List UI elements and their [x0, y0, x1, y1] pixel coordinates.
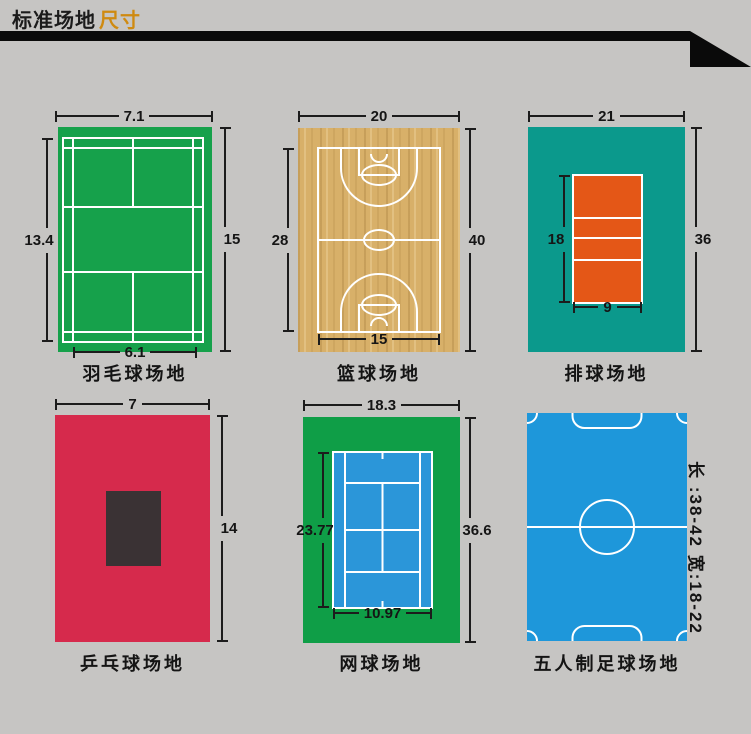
dim-line: [221, 417, 223, 516]
dim-tick: [42, 340, 53, 342]
dim-label: 18.3: [362, 398, 401, 413]
dim-line: [142, 403, 208, 405]
dim-line: [469, 419, 471, 518]
dim-line: [406, 612, 430, 614]
dim-line: [617, 306, 640, 308]
dim-line: [287, 253, 289, 331]
dim-tick: [430, 608, 432, 619]
dim-line: [305, 404, 362, 406]
dim-label: 20: [366, 109, 393, 124]
futsal-size-note: 长 :38-42 宽:18-22: [690, 428, 710, 668]
futsal-field-lines: [527, 413, 687, 641]
dim-label: 28: [272, 228, 289, 253]
dim-tick: [438, 334, 440, 345]
futsal-label: 五人制足球场地: [497, 650, 717, 676]
dim-line: [469, 543, 471, 642]
dim-line: [620, 115, 683, 117]
dim-label: 9: [598, 300, 616, 315]
dim-tick: [640, 302, 642, 313]
dim-label: 6.1: [120, 345, 151, 360]
dim-label: 7: [123, 397, 141, 412]
dim-label: 23.77: [296, 518, 334, 543]
dim-line: [695, 252, 697, 350]
dim-tick: [211, 111, 213, 122]
dim-line: [469, 130, 471, 228]
dim-line: [46, 253, 48, 341]
dim-tick: [318, 606, 329, 608]
dim-line: [224, 129, 226, 227]
dim-line: [392, 338, 438, 340]
dim-label: 15: [224, 227, 241, 252]
dim-tick: [195, 347, 197, 358]
basketball-label: 篮球场地: [298, 360, 460, 386]
page-title: 标准场地尺寸: [12, 4, 141, 33]
dim-tick: [559, 301, 570, 303]
futsal-field: [527, 413, 687, 641]
dim-line: [150, 351, 195, 353]
dim-tick: [465, 350, 476, 352]
dim-label: 13.4: [24, 228, 53, 253]
title-accent: 尺寸: [99, 10, 141, 32]
dim-tick: [217, 640, 228, 642]
dim-line: [57, 403, 123, 405]
dim-line: [530, 115, 593, 117]
dim-line: [575, 306, 598, 308]
dim-label: 18: [548, 227, 565, 252]
basketball-court-lines: [298, 128, 460, 352]
dim-line: [287, 150, 289, 228]
dim-tick: [465, 641, 476, 643]
dim-tick: [208, 399, 210, 410]
dim-line: [224, 252, 226, 350]
ribbon-divider: [0, 31, 751, 68]
dim-line: [335, 612, 359, 614]
dim-label: 40: [469, 228, 486, 253]
dim-label: 21: [593, 109, 620, 124]
dim-line: [320, 338, 366, 340]
tennis-label: 网球场地: [303, 650, 460, 676]
dim-line: [57, 115, 119, 117]
dim-tick: [458, 400, 460, 411]
badminton-court: [58, 127, 212, 352]
title-main: 标准场地: [12, 10, 96, 32]
dim-label: 7.1: [119, 109, 150, 124]
dim-line: [469, 253, 471, 351]
dim-line: [75, 351, 120, 353]
dim-label: 15: [366, 332, 393, 347]
dim-line: [300, 115, 366, 117]
tabletennis-label: 乒乓球场地: [55, 650, 210, 676]
dim-line: [563, 252, 565, 302]
dim-label: 36.6: [462, 518, 491, 543]
dim-line: [149, 115, 211, 117]
dim-line: [322, 543, 324, 607]
dim-line: [221, 541, 223, 640]
dim-tick: [283, 330, 294, 332]
volleyball-label: 排球场地: [528, 360, 685, 386]
dim-tick: [691, 350, 702, 352]
dim-tick: [683, 111, 685, 122]
badminton-label: 羽毛球场地: [58, 360, 212, 386]
dim-line: [695, 129, 697, 227]
tabletennis-court: [55, 415, 210, 642]
dim-line: [322, 454, 324, 518]
dim-label: 10.97: [359, 606, 407, 621]
badminton-court-lines: [58, 127, 212, 352]
dim-label: 14: [221, 516, 238, 541]
dim-label: 36: [695, 227, 712, 252]
infographic-canvas: 标准场地尺寸 7.1 15 13.4 6.1 羽毛球场地: [0, 0, 751, 734]
tabletennis-table: [106, 491, 161, 566]
dim-tick: [458, 111, 460, 122]
dim-tick: [220, 350, 231, 352]
dim-line: [46, 140, 48, 228]
basketball-court: [298, 128, 460, 352]
dim-line: [401, 404, 458, 406]
dim-line: [392, 115, 458, 117]
dim-line: [563, 177, 565, 227]
